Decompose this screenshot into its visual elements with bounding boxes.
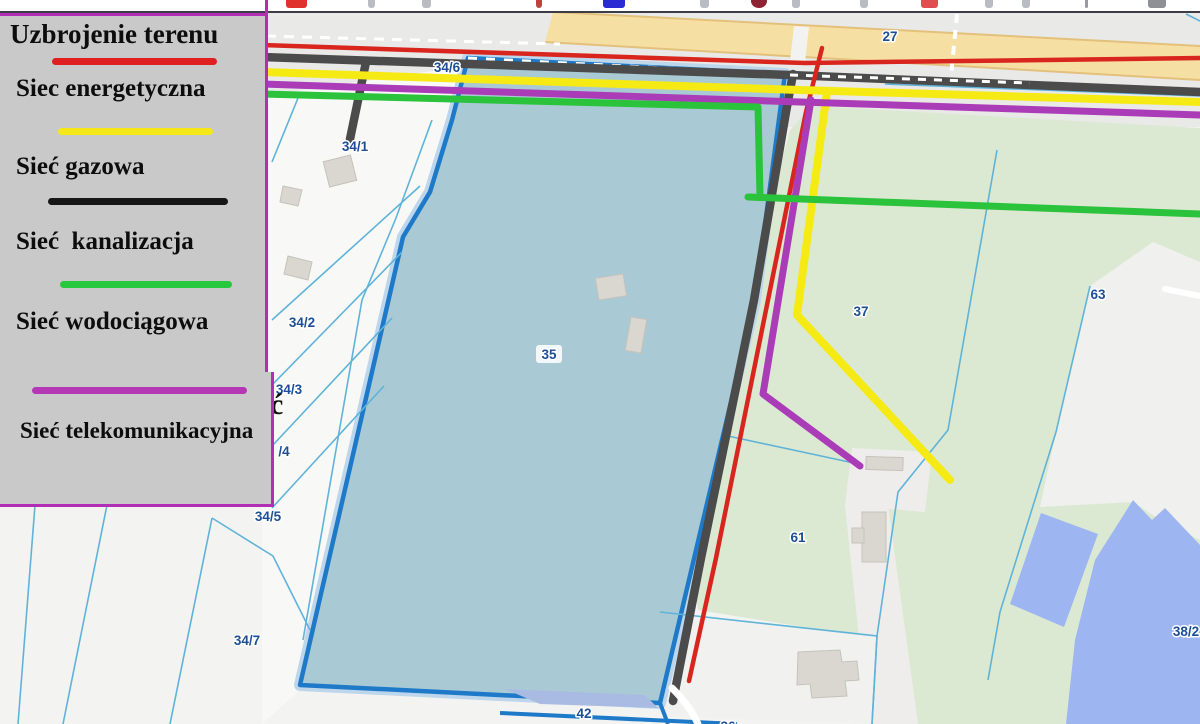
- building: [280, 186, 302, 206]
- legend-item-label: Sieć telekomunikacyjna: [0, 418, 268, 444]
- parcel-label-35: 35: [541, 347, 557, 362]
- parcel-label-63: 63: [1090, 287, 1106, 302]
- parcel-label-34-5: 34/5: [255, 509, 282, 524]
- parcel-label-34-2: 34/2: [289, 315, 315, 330]
- legend-swatch: [52, 58, 217, 65]
- divider: [1085, 0, 1088, 8]
- gis-viewer: 2734/634/134/234/3/434/534/73537636138/2…: [0, 0, 1200, 724]
- legend-border: [265, 0, 268, 13]
- glyph: [1022, 0, 1030, 8]
- building: [595, 274, 626, 300]
- blue-app-icon[interactable]: [603, 0, 625, 8]
- legend-swatch: [48, 198, 228, 205]
- parcel-label-34-1: 34/1: [342, 139, 369, 154]
- glyph: [700, 0, 709, 8]
- red-app-icon[interactable]: [286, 0, 307, 8]
- printer-icon[interactable]: [1148, 0, 1166, 8]
- red-badge-icon[interactable]: [921, 0, 938, 8]
- glyph: [985, 0, 993, 8]
- legend-swatch: [32, 387, 247, 394]
- glyph: [368, 0, 375, 8]
- dark-red-circle-icon[interactable]: [751, 0, 767, 8]
- parcel-label-38-2: 38/2: [1173, 624, 1199, 639]
- parcel-label-27: 27: [882, 29, 897, 44]
- legend-item-label: Sieć kanalizacja: [0, 228, 268, 256]
- glyph: [792, 0, 800, 8]
- parcel-label-61: 61: [790, 530, 806, 545]
- parcel-label-37: 37: [853, 304, 868, 319]
- legend-title: Uzbrojenie terenu: [10, 19, 218, 50]
- legend-swatch: [58, 128, 213, 135]
- building: [866, 456, 903, 470]
- legend-item-label: Sieć gazowa: [0, 153, 268, 181]
- parcel-label-34-6: 34/6: [434, 60, 461, 75]
- glyph: [860, 0, 868, 8]
- app-toolbar[interactable]: [0, 0, 1200, 13]
- parcel-label--4: /4: [278, 444, 290, 459]
- legend-swatch: [60, 281, 232, 288]
- parcel-label-42: 42: [576, 706, 591, 721]
- small-red-glyph[interactable]: [536, 0, 542, 8]
- legend-item-label: Sieć wodociągowa: [0, 308, 268, 336]
- parcel-label-36: 36: [720, 719, 736, 724]
- legend-item-label: Siec energetyczna: [0, 75, 268, 103]
- glyph: [422, 0, 431, 8]
- parcel-label-34-7: 34/7: [234, 633, 260, 648]
